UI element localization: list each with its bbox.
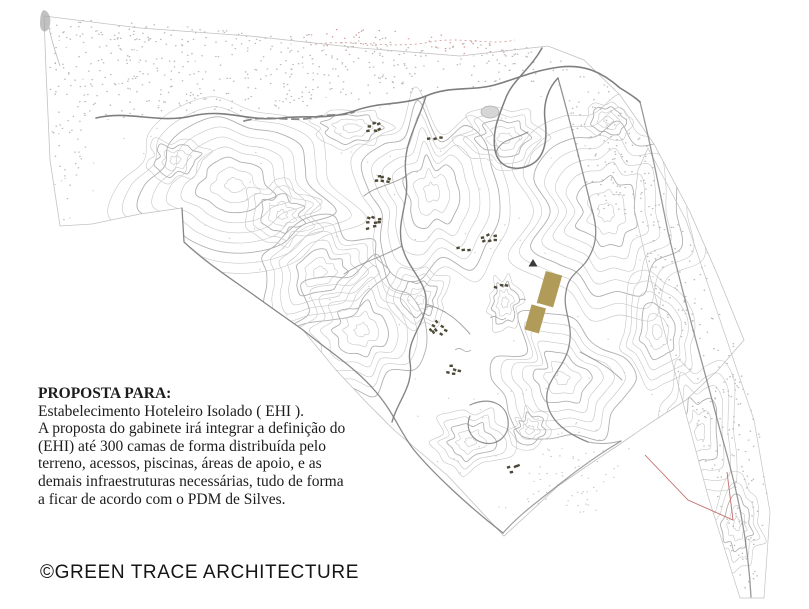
proposal-line: terreno, acessos, piscinas, áreas de apo…: [38, 455, 378, 473]
copyright-text: ©GREEN TRACE ARCHITECTURE: [40, 562, 359, 584]
proposal-text: PROPOSTA PARA: Estabelecimento Hoteleiro…: [38, 385, 378, 508]
clearing-blob: [481, 106, 499, 118]
building-cluster: [446, 363, 462, 377]
red-boundary-line: [645, 455, 733, 520]
proposal-line: demais infraestruturas necessárias, tudo…: [38, 473, 378, 491]
proposal-line: Estabelecimento Hoteleiro Isolado ( EHI …: [38, 403, 378, 421]
building-cluster: [456, 246, 471, 251]
building-cluster: [427, 136, 443, 140]
site-boundary: [44, 16, 770, 598]
proposal-line: (EHI) até 300 camas de forma distribuída…: [38, 438, 378, 456]
building-cluster: [365, 121, 383, 135]
proposal-line: a ficar de acordo com o PDM de Silves.: [38, 491, 378, 509]
map-annotation-marks: [40, 10, 538, 352]
proposal-line: A proposta do gabinete irá integrar a de…: [38, 420, 378, 438]
site-plan-map: [0, 0, 809, 609]
building-cluster: [480, 232, 497, 243]
proposal-heading: PROPOSTA PARA:: [38, 385, 378, 403]
building-cluster: [427, 319, 448, 340]
page: PROPOSTA PARA: Estabelecimento Hoteleiro…: [0, 0, 809, 609]
building-cluster: [507, 462, 522, 474]
building-cluster: [366, 216, 382, 231]
